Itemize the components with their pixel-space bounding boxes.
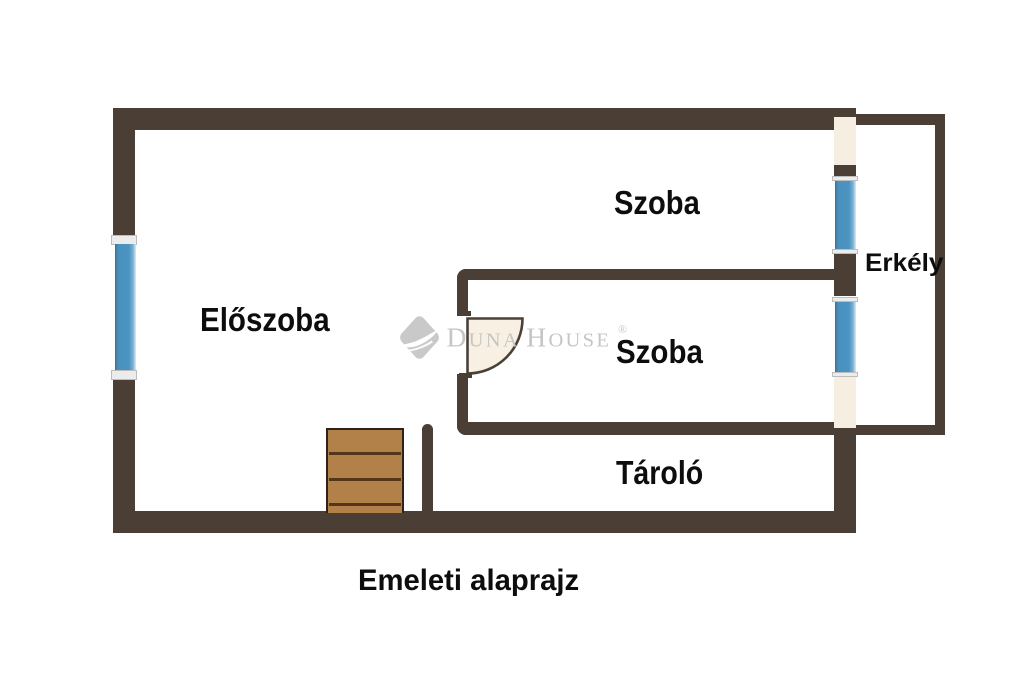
svg-text:DUNA HOUSE: DUNA HOUSE: [447, 322, 612, 353]
